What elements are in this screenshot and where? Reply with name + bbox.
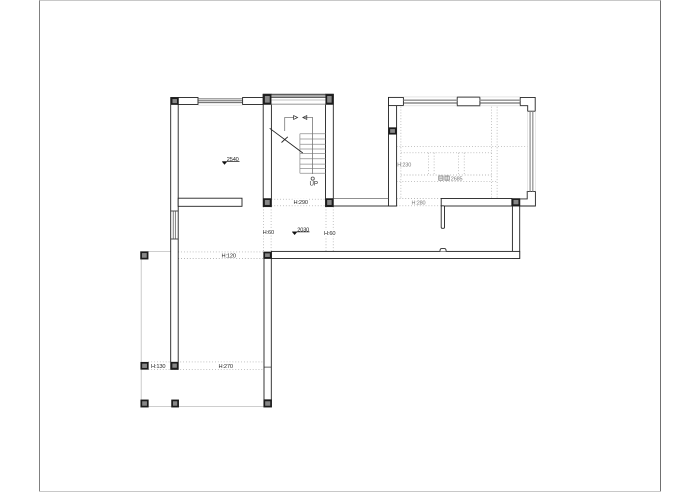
svg-text:H:270: H:270 — [219, 364, 233, 370]
svg-text:H:60: H:60 — [324, 231, 335, 237]
svg-text:H:130: H:130 — [151, 364, 165, 370]
svg-text:H:280: H:280 — [412, 200, 426, 206]
svg-text:H:120: H:120 — [222, 254, 236, 260]
svg-text:H:60: H:60 — [263, 230, 274, 236]
svg-text:H:230: H:230 — [397, 162, 411, 168]
svg-text:2540: 2540 — [227, 157, 239, 163]
svg-text:2685: 2685 — [451, 176, 463, 182]
svg-text:2030: 2030 — [297, 227, 309, 233]
svg-text:H:290: H:290 — [294, 200, 308, 206]
svg-text:UP: UP — [310, 180, 318, 187]
